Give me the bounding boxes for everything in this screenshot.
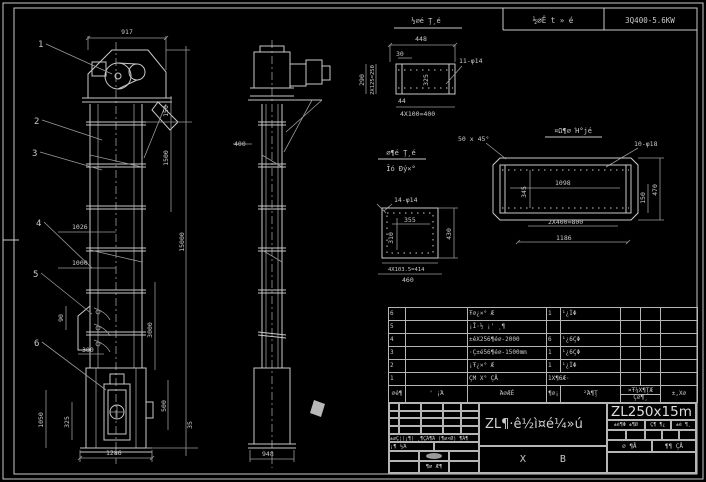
cell-rem: [661, 308, 698, 321]
cell-w1: [621, 373, 641, 386]
signature-cell: [419, 451, 449, 461]
balloon-3: 3: [32, 149, 37, 159]
balloon-1: 1: [38, 40, 43, 50]
dim-3000: 3000: [146, 322, 154, 338]
header-mat: ²Ά¶Ţ: [561, 386, 621, 403]
dim-1186: 1186: [556, 234, 572, 242]
detail-b-title1: ∅¶é Ţ¸é: [386, 149, 416, 157]
cell-w2: [641, 334, 661, 347]
dim-inner-325: 325: [422, 74, 430, 86]
cell-w1: [621, 321, 641, 334]
scale-label: Ç¶ ¶¿: [645, 420, 671, 430]
cell-no: 3: [389, 347, 406, 360]
cell-mat: ¹¿ÌΦ: [561, 360, 621, 373]
cell-qty: 1: [547, 347, 561, 360]
detail-b-title2: Ĭó Ðý×°: [386, 164, 416, 173]
dim-300: 300: [82, 346, 94, 354]
header-remarks: ±,X∅: [661, 386, 698, 403]
bottom-sign-row: ¶∅ Æ¶: [419, 461, 449, 473]
cell-no: 5: [389, 321, 406, 334]
signature-mark: [426, 453, 442, 459]
cell-name: ÇΜ X° ÇÅ: [468, 373, 547, 386]
cell-qty: 6: [547, 334, 561, 347]
sign-labels-row: ±∅Ç¦(¡¶) ¸¶ÇΆ¶Ά (¶∅×Ø) ¶Ά¶: [389, 434, 479, 443]
dim-30: 30: [396, 50, 404, 58]
balloon-2: 2: [34, 117, 39, 127]
dim-150: 150: [162, 105, 170, 117]
dim-1286: 1286: [106, 449, 122, 457]
dim-1026: 1026: [72, 223, 88, 231]
cell-dwg: [406, 373, 468, 386]
dim-4x100: 4X100=400: [400, 110, 435, 118]
cell-no: 4: [389, 334, 406, 347]
cell-mat: ¹¿6ÇΦ: [561, 334, 621, 347]
title-block-signatures: ±∅Ç¦(¡¶) ¸¶ÇΆ¶Ά (¶∅×Ø) ¶Ά¶ ¡¶ ½Ά ¶∅ Æ¶: [389, 403, 479, 473]
detail-a-title: ½∅é Ţ¸é: [411, 17, 441, 25]
section-mark: [310, 400, 325, 417]
cell-no: 6: [389, 308, 406, 321]
parts-table: 6 Ŧ∅¿×° Æ1 ¹¿ÌΦ 5 ¡Ī·½ ¡' ¸¶ 4 ±éX256¶é∅…: [388, 307, 697, 402]
dim-917: 917: [121, 28, 133, 36]
dim-35: 35: [186, 421, 194, 429]
cell-w1: [621, 360, 641, 373]
dim-1050: 1050: [37, 412, 45, 428]
dim-1000: 1000: [72, 259, 88, 267]
cell-mat: [561, 321, 621, 334]
dim-15000: 15000: [178, 232, 186, 252]
cell-w2: [641, 321, 661, 334]
cell-no: 2: [389, 360, 406, 373]
cell-rem: [661, 347, 698, 360]
header-name: Ά∅ÆÈ: [468, 386, 547, 403]
dim-1500: 1500: [162, 150, 170, 166]
table-row: 1 ÇΜ X° ÇÅ1X¶6Æ·: [389, 373, 698, 386]
cell-qty: 1X¶6Æ·: [547, 373, 621, 386]
dim-310: 310: [387, 232, 395, 244]
label-chamfer: 50 x 45°: [458, 135, 489, 143]
dim-345: 345: [520, 186, 528, 198]
side-view: 948 400: [233, 40, 330, 468]
dim-2x400: 2X400=800: [548, 218, 583, 226]
table-row: 6 Ŧ∅¿×° Æ1 ¹¿ÌΦ: [389, 308, 698, 321]
cell-w1: [621, 347, 641, 360]
cell-dwg: [406, 360, 468, 373]
dim-460: 460: [402, 276, 414, 284]
weight-label: ±é¶Φ ±¶Ø: [607, 420, 645, 430]
cell-w2: [641, 308, 661, 321]
dim-325: 325: [63, 416, 71, 428]
header-mid-cell: ½∅Ê t » é: [533, 16, 574, 25]
cell-dwg: [406, 321, 468, 334]
cell-rem: [661, 321, 698, 334]
cell-qty: [547, 321, 561, 334]
dim-290: 290: [358, 74, 366, 86]
cell-qty: 1: [547, 308, 561, 321]
cell-name: ¡Ŧ¿×° Æ: [468, 360, 547, 373]
cell-rem: [661, 373, 698, 386]
header-dwg: ' ¡Ά: [406, 386, 468, 403]
cell-name: ¡Ī·½ ¡' ¸¶: [468, 321, 547, 334]
ratio-label: ±é ¶¸: [671, 420, 696, 430]
drawing-subtitle: Χ Β: [506, 454, 580, 465]
cell-no: 1: [389, 373, 406, 386]
header-right-cell: 3Q400-5.6KW: [625, 16, 675, 25]
dim-430: 430: [445, 228, 453, 240]
dim-470: 470: [651, 184, 659, 196]
cell-w2: [641, 373, 661, 386]
cell-mat: ¹¿ÌΦ: [561, 308, 621, 321]
dim-44: 44: [398, 97, 406, 105]
table-header-row: ∅é¶ ' ¡Ά Ά∅ÆÈ ¶∅¡ ²Ά¶Ţ ¤Ŧ¼X¶ŢÆ Ç∅¶¸ ±,X∅: [389, 386, 698, 403]
dim-355: 355: [404, 216, 416, 224]
header-weight: ¤Ŧ¼X¶ŢÆ Ç∅¶¸: [621, 386, 661, 403]
dim-90: 90: [57, 314, 65, 322]
header-total-weight: Ç∅¶¸: [621, 395, 660, 401]
cell-mat: ¹¿6ÇΦ: [561, 347, 621, 360]
cell-dwg: [406, 347, 468, 360]
label-10-d18: 10-φ18: [634, 140, 658, 148]
table-row: 5 ¡Ī·½ ¡' ¸¶: [389, 321, 698, 334]
cell-qty: 1: [547, 360, 561, 373]
balloon-6: 6: [34, 339, 39, 349]
dim-500: 500: [160, 400, 168, 412]
header-no: ∅é¶: [389, 386, 406, 403]
table-row: 4 ±éX256¶é∅-20006 ¹¿6ÇΦ: [389, 334, 698, 347]
header-bar: ½∅Ê t » é 3Q400-5.6KW: [503, 8, 697, 30]
cad-sheet: ½∅Ê t » é 3Q400-5.6KW: [0, 0, 706, 482]
front-balloons: 1 2 3 4 5 6: [32, 40, 112, 390]
cell-w1: [621, 334, 641, 347]
cell-dwg: [406, 308, 468, 321]
cell-name: ±éX256¶é∅-2000: [468, 334, 547, 347]
sheet-number: ∅ ¶Å: [607, 440, 652, 452]
title-block-spec: ZL250x15m ±é¶Φ ±¶Ø Ç¶ ¶¿ ±é ¶¸ ∅ ¶Å ¶¶ Ç…: [607, 403, 696, 473]
check-row: ¡¶ ½Ά: [389, 442, 434, 451]
cell-w2: [641, 347, 661, 360]
drawing-title: ZL¶·ê½ì¤é¼»ú: [485, 417, 583, 432]
detail-a: ½∅é Ţ¸é 448 30 325 290 2X125=250 11-φ14 …: [358, 17, 483, 118]
table-row: 2 ¡Ŧ¿×° Æ1 ¹¿ÌΦ: [389, 360, 698, 373]
cell-rem: [661, 334, 698, 347]
dim-948: 948: [262, 450, 274, 458]
dim-4x103: 4X103.5=414: [388, 267, 425, 273]
balloon-5: 5: [33, 270, 38, 280]
dim-1098: 1098: [555, 179, 571, 187]
sheet-total: ¶¶ ÇÅ: [652, 440, 696, 452]
cell-dwg: [406, 334, 468, 347]
label-14-d14: 14-φ14: [394, 196, 418, 204]
balloon-4: 4: [36, 219, 41, 229]
cell-w1: [621, 308, 641, 321]
dim-448: 448: [415, 35, 427, 43]
cell-name: Ŧ∅¿×° Æ: [468, 308, 547, 321]
dim-150r: 150: [639, 192, 647, 204]
detail-b: ∅¶é Ţ¸é Ĭó Ðý×° 14-φ14 355 310 430 4X103…: [377, 149, 458, 284]
header-qty: ¶∅¡: [547, 386, 561, 403]
title-block: ±∅Ç¦(¡¶) ¸¶ÇΆ¶Ά (¶∅×Ø) ¶Ά¶ ¡¶ ½Ά ¶∅ Æ¶ Z…: [388, 402, 697, 474]
front-dimensions: 917 150 1500 15000 3000 500 35 1026 1000…: [37, 28, 198, 462]
table-row: 3 ·Ç±é56¶é∅-1500mm1 ¹¿6ÇΦ: [389, 347, 698, 360]
cell-rem: [661, 360, 698, 373]
label-11-d14: 11-φ14: [459, 57, 483, 65]
title-block-titles: ZL¶·ê½ì¤é¼»ú Χ Β: [479, 403, 607, 473]
detail-c: ¤Ω¶∅ Ή°jé 50 x 45° 10-φ18 1098 345 150 4…: [458, 127, 664, 244]
detail-c-title: ¤Ω¶∅ Ή°jé: [554, 127, 592, 135]
cell-w2: [641, 360, 661, 373]
dim-pitch-125: 2X125=250: [370, 65, 376, 95]
model-label: ZL250x15m: [611, 404, 692, 420]
cell-name: ·Ç±é56¶é∅-1500mm: [468, 347, 547, 360]
